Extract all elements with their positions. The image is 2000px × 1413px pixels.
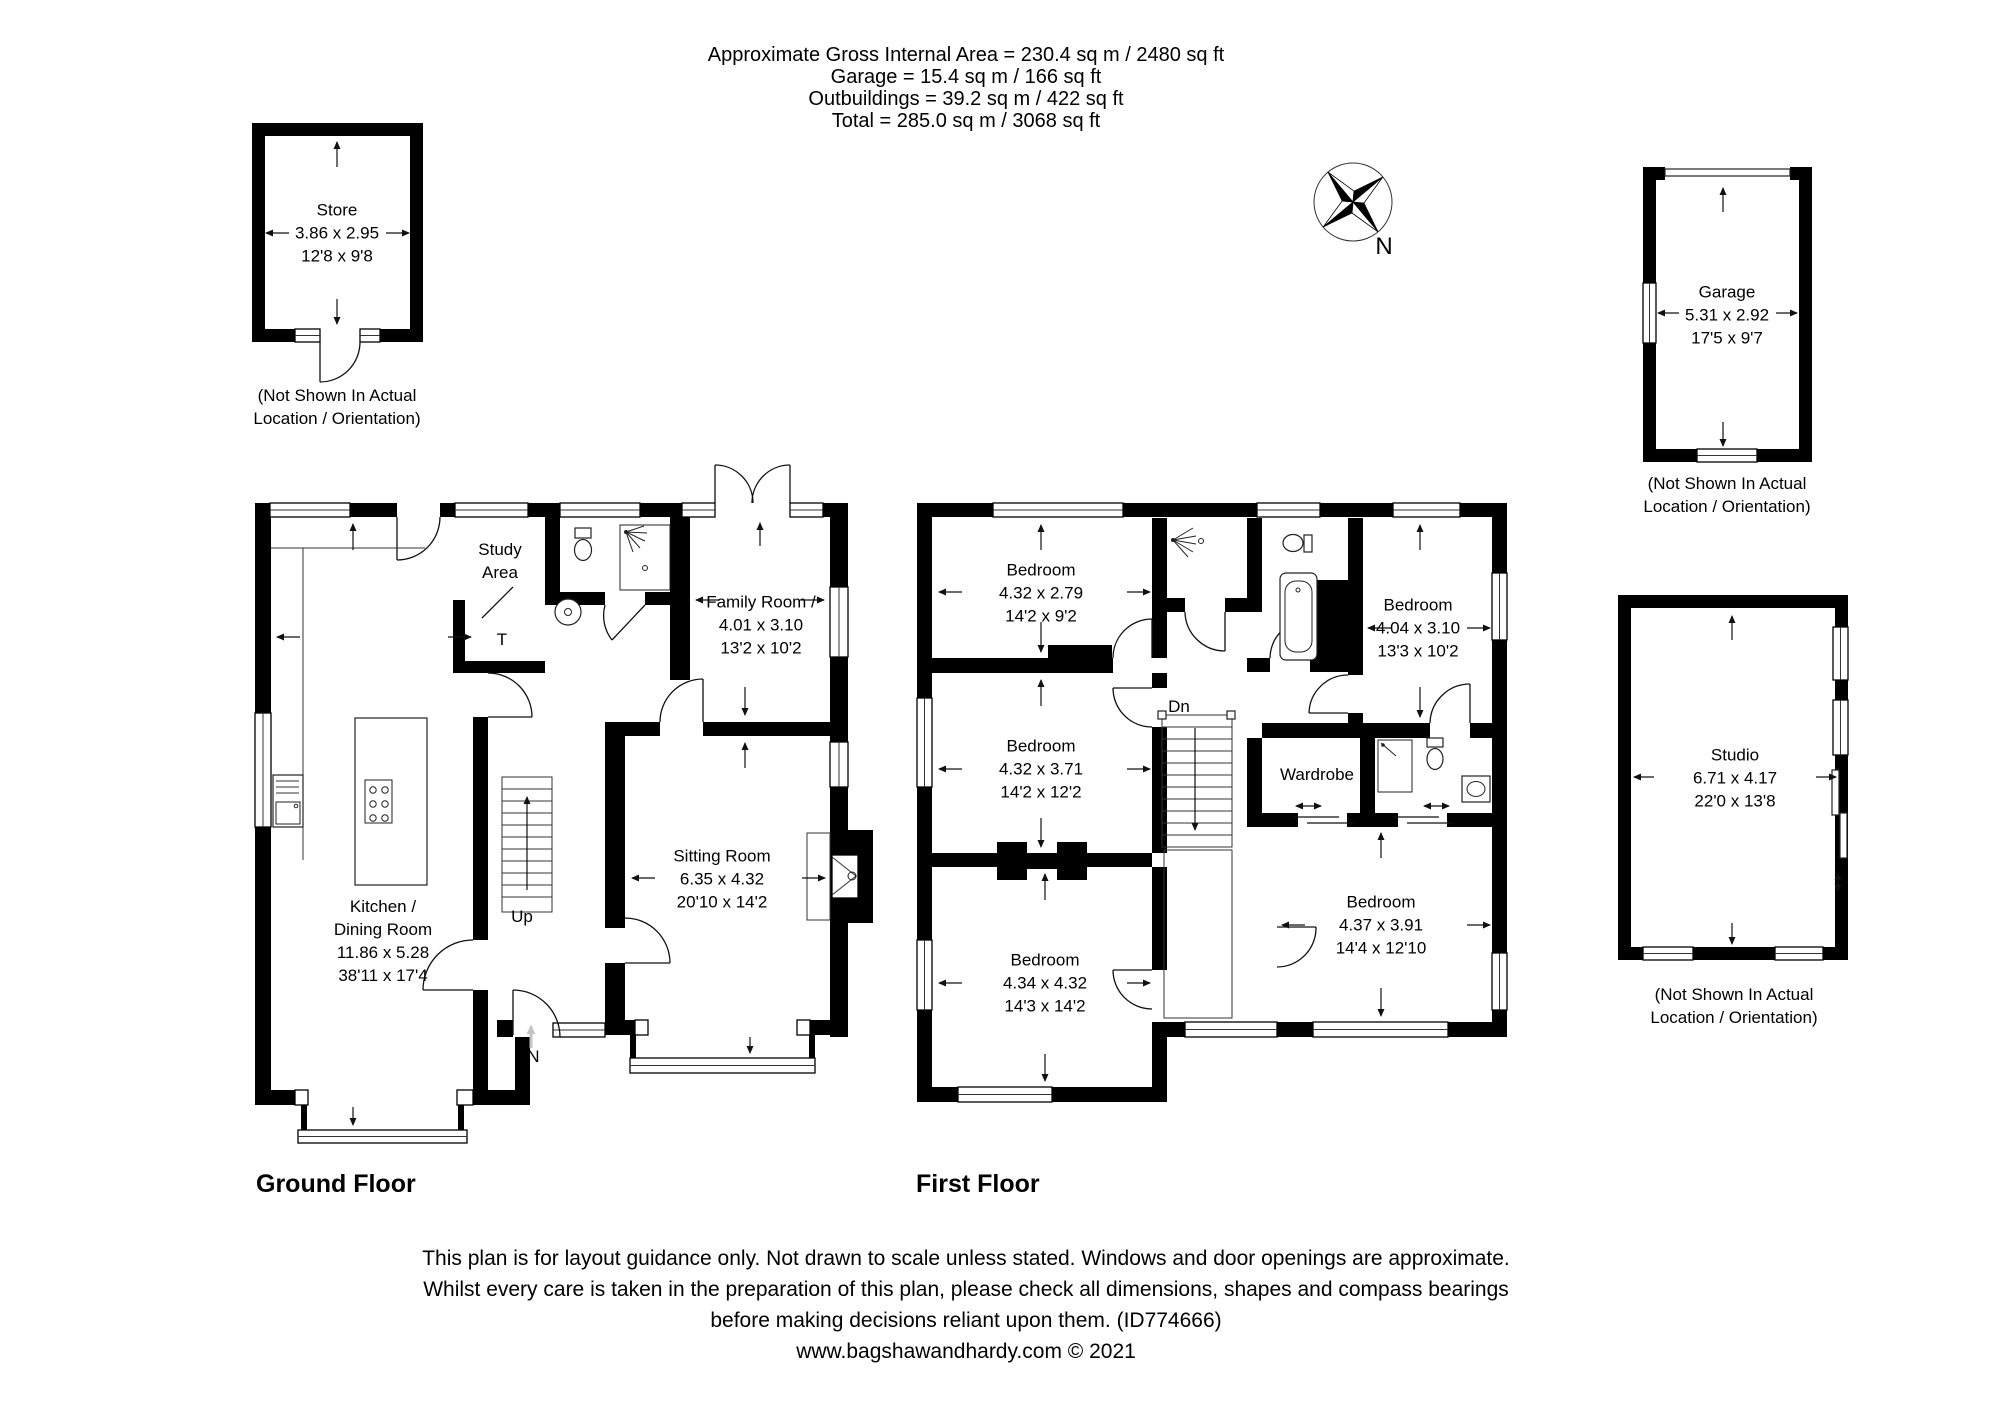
shower-icon xyxy=(1171,528,1204,557)
caption-line: (Not Shown In Actual xyxy=(1650,983,1817,1006)
room-imperial: 12'8 x 9'8 xyxy=(295,245,379,268)
store-label: Store 3.86 x 2.95 12'8 x 9'8 xyxy=(295,199,379,268)
room-metric: 4.32 x 3.71 xyxy=(999,758,1083,781)
door-icon xyxy=(320,342,360,382)
room-metric: 6.71 x 4.17 xyxy=(1693,767,1777,790)
header-line: Approximate Gross Internal Area = 230.4 … xyxy=(708,44,1224,66)
credit-line: www.bagshawandhardy.com © 2021 xyxy=(422,1336,1510,1367)
sitting-room-label: Sitting Room 6.35 x 4.32 20'10 x 14'2 xyxy=(673,845,770,914)
first-floor-title: First Floor xyxy=(916,1170,1040,1199)
garage-door-icon xyxy=(1665,169,1790,176)
room-imperial: 14'2 x 9'2 xyxy=(999,605,1083,628)
ensuite-toilet-icon xyxy=(1427,738,1443,770)
ensuite-shower-icon xyxy=(1378,740,1412,792)
studio-label: Studio 6.71 x 4.17 22'0 x 13'8 xyxy=(1693,744,1777,813)
room-name: Bedroom xyxy=(1336,891,1427,914)
room-metric: 4.37 x 3.91 xyxy=(1336,914,1427,937)
room-name: Family Room / xyxy=(706,591,816,614)
porch-canopy-outline xyxy=(1164,850,1232,1018)
disclaimer-line: This plan is for layout guidance only. N… xyxy=(422,1243,1510,1274)
room-name: Dining Room xyxy=(334,918,432,941)
island-hob-icon xyxy=(355,718,427,885)
toilet-icon xyxy=(575,528,592,561)
studio-caption: (Not Shown In Actual Location / Orientat… xyxy=(1650,983,1817,1029)
room-imperial: 20'10 x 14'2 xyxy=(673,891,770,914)
room-metric: 3.86 x 2.95 xyxy=(295,222,379,245)
floorplan-page: Approximate Gross Internal Area = 230.4 … xyxy=(0,0,2000,1413)
room-imperial: 38'11 x 17'4 xyxy=(334,964,432,987)
room-name: Bedroom xyxy=(1003,949,1087,972)
header-area-summary: Approximate Gross Internal Area = 230.4 … xyxy=(708,44,1224,132)
header-line: Garage = 15.4 sq m / 166 sq ft xyxy=(708,66,1224,88)
header-line: Total = 285.0 sq m / 3068 sq ft xyxy=(708,110,1224,132)
room-imperial: 17'5 x 9'7 xyxy=(1685,327,1769,350)
room-name: Store xyxy=(295,199,379,222)
kitchen-dining-label: Kitchen / Dining Room 11.86 x 5.28 38'11… xyxy=(334,895,432,987)
room-metric: 11.86 x 5.28 xyxy=(334,941,432,964)
stairs-down-tag: Dn xyxy=(1168,697,1190,717)
ground-floor-title: Ground Floor xyxy=(256,1170,416,1199)
room-name: Bedroom xyxy=(1376,594,1460,617)
study-area-label: Study Area xyxy=(478,538,521,584)
family-room-label: Family Room / 4.01 x 3.10 13'2 x 10'2 xyxy=(706,591,816,660)
room-name: Kitchen / xyxy=(334,895,432,918)
caption-line: (Not Shown In Actual xyxy=(253,384,420,407)
store-caption: (Not Shown In Actual Location / Orientat… xyxy=(253,384,420,430)
header-line: Outbuildings = 39.2 sq m / 422 sq ft xyxy=(708,88,1224,110)
disclaimer: This plan is for layout guidance only. N… xyxy=(422,1243,1510,1367)
disclaimer-line: before making decisions reliant upon the… xyxy=(422,1305,1510,1336)
staircase-down xyxy=(1158,711,1235,1018)
fireplace-icon xyxy=(807,830,873,923)
room-metric: 4.01 x 3.10 xyxy=(706,614,816,637)
caption-line: Location / Orientation) xyxy=(1650,1006,1817,1029)
wardrobe-label: Wardrobe xyxy=(1280,765,1354,785)
room-name: Bedroom xyxy=(999,735,1083,758)
staircase-up xyxy=(502,777,552,912)
room-name: Area xyxy=(478,561,521,584)
sink-icon xyxy=(273,775,303,827)
garage-caption: (Not Shown In Actual Location / Orientat… xyxy=(1643,472,1810,518)
room-imperial: 14'2 x 12'2 xyxy=(999,781,1083,804)
room-name: Sitting Room xyxy=(673,845,770,868)
disclaimer-line: Whilst every care is taken in the prepar… xyxy=(422,1274,1510,1305)
room-metric: 5.31 x 2.92 xyxy=(1685,304,1769,327)
stairs-up-tag: Up xyxy=(511,907,533,927)
bedroom-2-label: Bedroom 4.04 x 3.10 13'3 x 10'2 xyxy=(1376,594,1460,663)
shower-icon xyxy=(620,525,670,590)
room-name: Study xyxy=(478,538,521,561)
bedroom-1-label: Bedroom 4.32 x 2.79 14'2 x 9'2 xyxy=(999,559,1083,628)
door-icon xyxy=(397,465,790,1037)
room-metric: 6.35 x 4.32 xyxy=(673,868,770,891)
bedroom-5-label: Bedroom 4.37 x 3.91 14'4 x 12'10 xyxy=(1336,891,1427,960)
room-imperial: 14'3 x 14'2 xyxy=(1003,995,1087,1018)
entrance-in-tag: IN xyxy=(523,1047,540,1067)
ensuite-sink-icon xyxy=(1462,776,1490,802)
compass-star xyxy=(1323,172,1383,232)
ground-floor-plan xyxy=(240,440,900,1160)
garage-label: Garage 5.31 x 2.92 17'5 x 9'7 xyxy=(1685,281,1769,350)
room-metric: 4.04 x 3.10 xyxy=(1376,617,1460,640)
room-metric: 4.32 x 2.79 xyxy=(999,582,1083,605)
compass-rose-icon xyxy=(1305,155,1415,265)
caption-line: (Not Shown In Actual xyxy=(1643,472,1810,495)
room-imperial: 22'0 x 13'8 xyxy=(1693,790,1777,813)
toilet-icon xyxy=(1283,535,1312,553)
bath-icon xyxy=(1280,573,1317,660)
caption-line: Location / Orientation) xyxy=(253,407,420,430)
bedroom-4-label: Bedroom 4.34 x 4.32 14'3 x 14'2 xyxy=(1003,949,1087,1018)
room-imperial: 13'3 x 10'2 xyxy=(1376,640,1460,663)
room-imperial: 13'2 x 10'2 xyxy=(706,637,816,660)
room-name: Garage xyxy=(1685,281,1769,304)
room-metric: 4.34 x 4.32 xyxy=(1003,972,1087,995)
basin-icon xyxy=(555,599,581,625)
room-name: Studio xyxy=(1693,744,1777,767)
north-label: N xyxy=(1375,233,1392,261)
room-imperial: 14'4 x 12'10 xyxy=(1336,937,1427,960)
caption-line: Location / Orientation) xyxy=(1643,495,1810,518)
room-name: Bedroom xyxy=(999,559,1083,582)
bedroom-3-label: Bedroom 4.32 x 3.71 14'2 x 12'2 xyxy=(999,735,1083,804)
toilet-tag: T xyxy=(497,630,507,650)
